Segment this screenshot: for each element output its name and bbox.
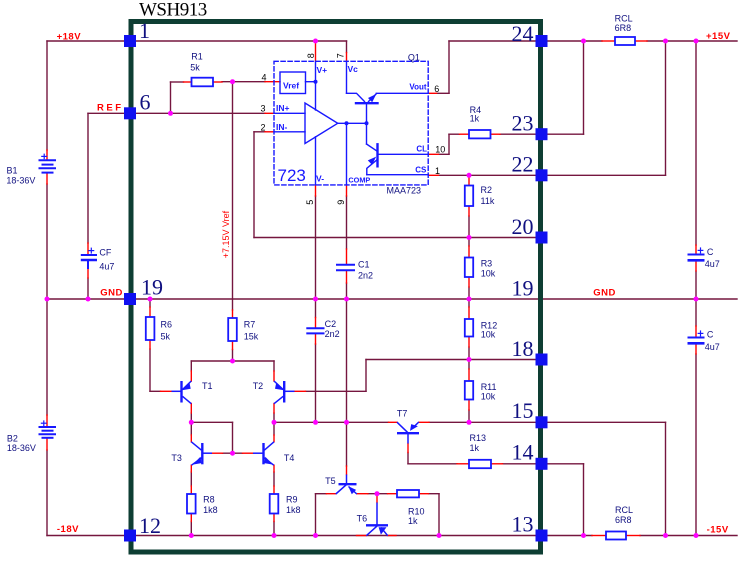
svg-text:Vout: Vout [409, 82, 427, 91]
svg-text:1k: 1k [408, 516, 418, 526]
svg-text:T6: T6 [357, 513, 368, 523]
svg-text:19: 19 [141, 275, 163, 300]
svg-text:6R8: 6R8 [615, 515, 632, 525]
svg-text:1k: 1k [470, 443, 480, 453]
svg-text:18-36V: 18-36V [6, 176, 35, 186]
svg-text:-15V: -15V [707, 524, 729, 535]
svg-text:1: 1 [139, 18, 150, 43]
svg-text:+15V: +15V [706, 31, 731, 42]
svg-text:10: 10 [435, 144, 445, 154]
svg-text:13: 13 [512, 511, 534, 536]
svg-text:10k: 10k [481, 391, 496, 401]
svg-text:3: 3 [261, 103, 266, 113]
svg-text:T1: T1 [202, 381, 213, 391]
svg-text:REF: REF [97, 102, 124, 113]
svg-text:18-36V: 18-36V [7, 443, 36, 453]
svg-text:1k8: 1k8 [286, 505, 301, 515]
svg-text:5k: 5k [161, 331, 171, 341]
svg-text:2: 2 [261, 122, 266, 132]
svg-text:10k: 10k [481, 268, 496, 278]
svg-text:T4: T4 [284, 453, 295, 463]
svg-text:RCL: RCL [615, 14, 633, 24]
svg-text:R2: R2 [481, 185, 493, 195]
svg-text:Vref: Vref [283, 80, 299, 90]
svg-text:4u7: 4u7 [705, 259, 720, 269]
svg-text:22: 22 [512, 151, 534, 176]
svg-text:6R8: 6R8 [615, 23, 632, 33]
svg-text:GND: GND [593, 288, 616, 299]
svg-text:23: 23 [512, 110, 534, 135]
svg-text:R7: R7 [244, 319, 256, 329]
svg-text:10k: 10k [481, 329, 496, 339]
svg-text:8: 8 [306, 53, 316, 58]
svg-text:T3: T3 [171, 453, 182, 463]
svg-text:Vc: Vc [348, 64, 359, 74]
svg-text:24: 24 [512, 21, 534, 46]
svg-text:1k8: 1k8 [203, 505, 218, 515]
svg-text:723: 723 [278, 166, 306, 185]
svg-text:6: 6 [434, 84, 439, 94]
svg-text:T7: T7 [397, 408, 408, 418]
svg-text:RCL: RCL [615, 505, 633, 515]
svg-text:C: C [707, 330, 714, 340]
svg-text:7: 7 [335, 53, 345, 58]
svg-text:15k: 15k [244, 331, 259, 341]
svg-text:12: 12 [139, 513, 161, 538]
svg-text:11k: 11k [481, 196, 495, 206]
svg-text:4: 4 [262, 72, 267, 82]
svg-text:R10: R10 [408, 507, 425, 517]
svg-text:V-: V- [316, 173, 324, 183]
svg-text:C: C [707, 247, 714, 257]
svg-text:-18V: -18V [57, 524, 79, 535]
svg-text:1: 1 [435, 166, 440, 176]
svg-text:MAA723: MAA723 [387, 185, 422, 195]
svg-text:5: 5 [305, 200, 315, 205]
svg-text:Q1: Q1 [408, 53, 420, 63]
svg-text:4u7: 4u7 [99, 262, 114, 272]
svg-text:R6: R6 [161, 319, 173, 329]
svg-text:CS: CS [415, 165, 427, 174]
svg-text:CF: CF [99, 248, 111, 258]
svg-text:1k: 1k [470, 114, 480, 124]
svg-text:9: 9 [336, 200, 346, 205]
svg-text:R3: R3 [481, 258, 493, 268]
svg-text:18: 18 [512, 336, 534, 361]
svg-text:B1: B1 [7, 165, 18, 175]
svg-text:4u7: 4u7 [705, 342, 720, 352]
svg-text:+18V: +18V [57, 31, 82, 42]
svg-text:GND: GND [100, 287, 123, 298]
svg-text:T5: T5 [325, 476, 336, 486]
svg-text:+7.15V Vref: +7.15V Vref [221, 210, 231, 258]
svg-text:CL: CL [416, 144, 427, 153]
svg-text:IN+: IN+ [276, 103, 290, 113]
svg-text:T2: T2 [253, 381, 264, 391]
svg-text:C2: C2 [325, 319, 337, 329]
svg-text:R13: R13 [470, 433, 487, 443]
svg-text:R1: R1 [191, 52, 203, 62]
svg-text:R9: R9 [286, 494, 298, 504]
svg-text:IN-: IN- [276, 122, 288, 132]
svg-text:COMP: COMP [348, 176, 370, 185]
svg-text:14: 14 [512, 439, 534, 464]
svg-text:6: 6 [140, 90, 151, 115]
svg-text:19: 19 [512, 276, 534, 301]
svg-text:15: 15 [512, 398, 534, 423]
svg-text:5k: 5k [190, 63, 200, 73]
svg-text:20: 20 [512, 214, 534, 239]
svg-text:V+: V+ [317, 65, 328, 75]
svg-text:R8: R8 [203, 494, 215, 504]
svg-text:2n2: 2n2 [325, 329, 340, 339]
svg-text:C1: C1 [358, 259, 370, 269]
svg-text:2n2: 2n2 [358, 271, 373, 281]
